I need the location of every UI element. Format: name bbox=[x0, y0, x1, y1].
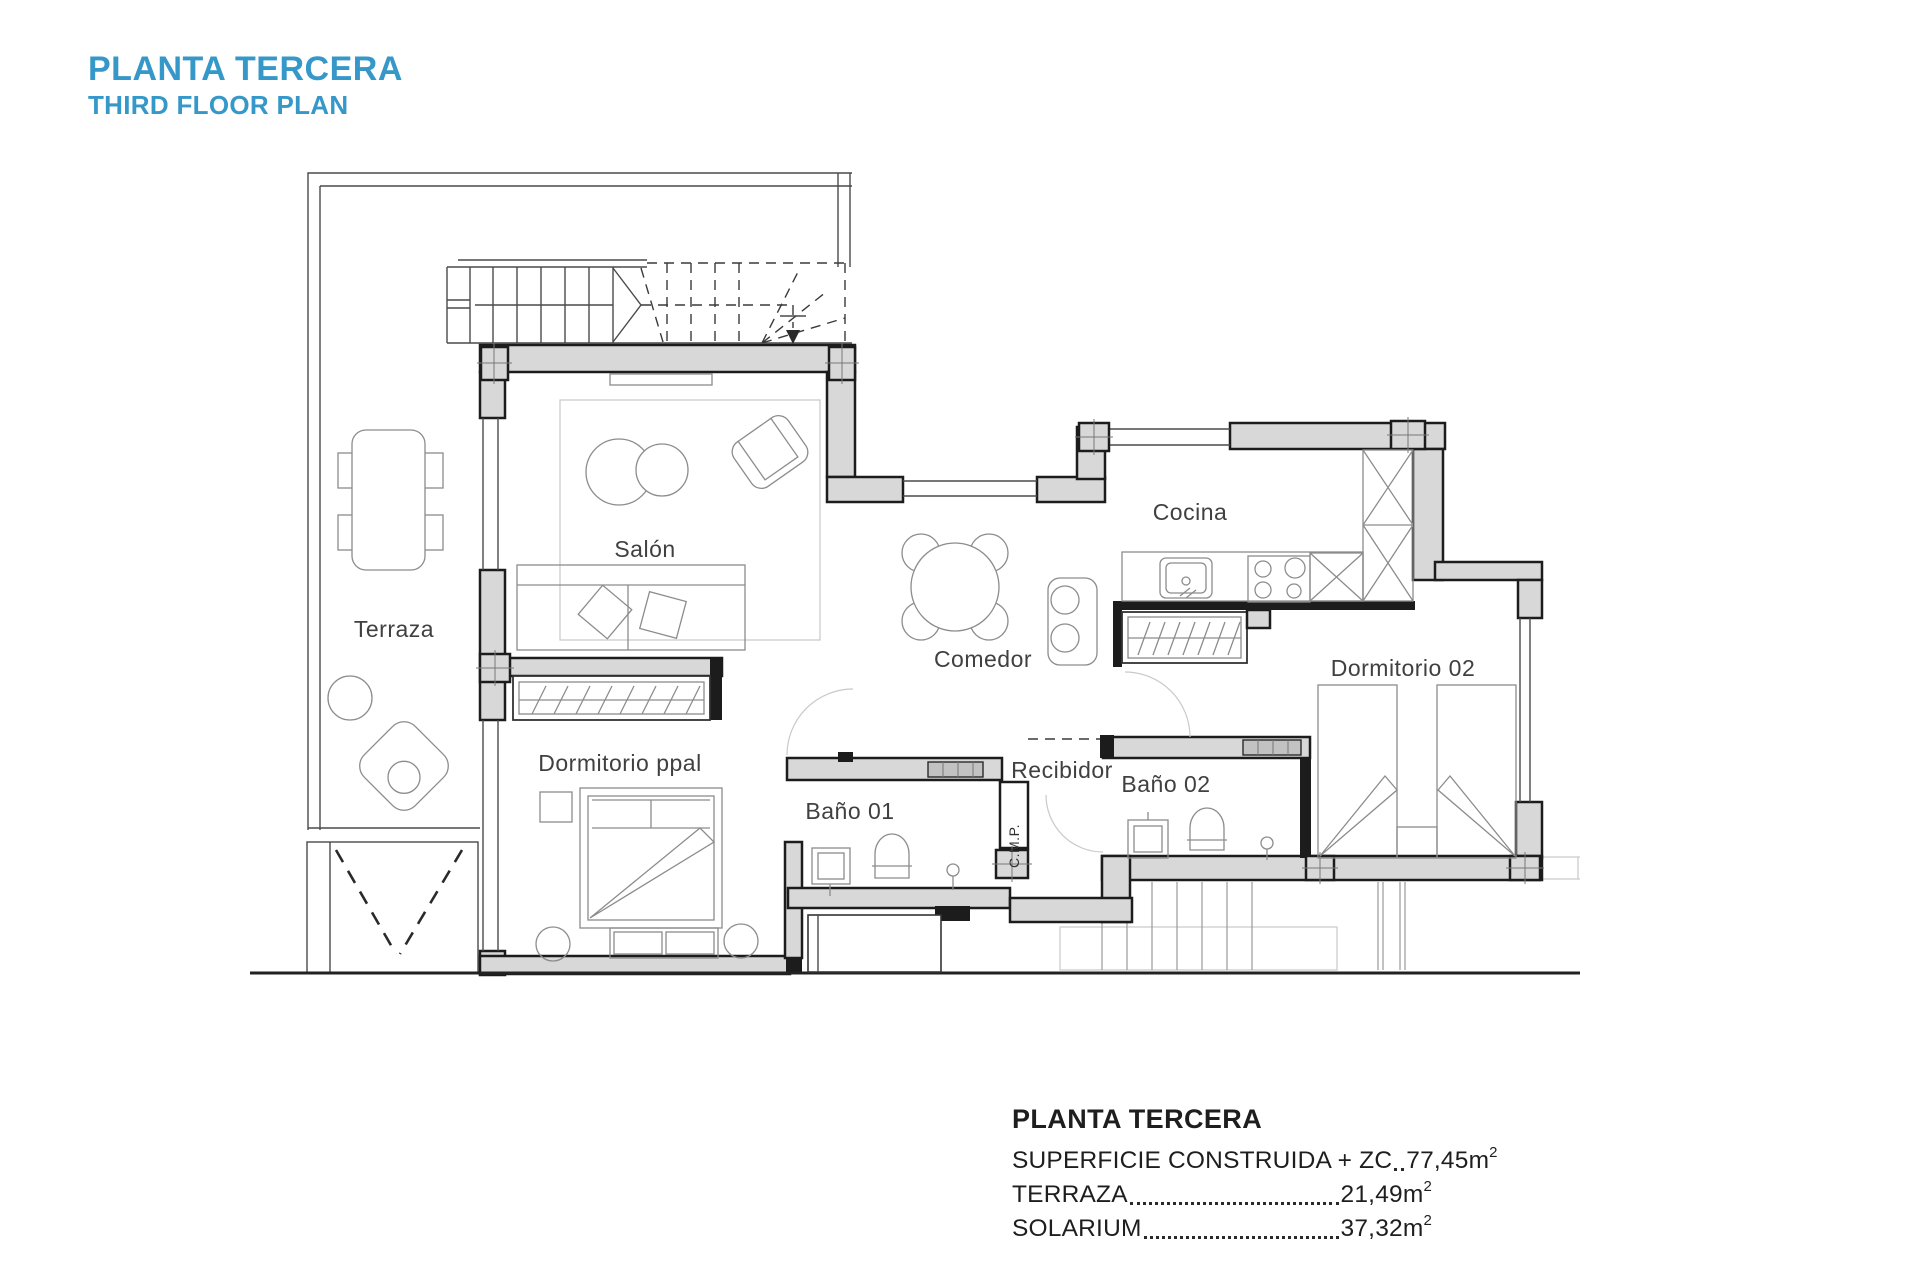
floor-plan: Terraza Salón Comedor Cocina Dormitorio … bbox=[0, 0, 1920, 1280]
room-label-dormitorio-ppal: Dormitorio ppal bbox=[538, 750, 701, 776]
summary-row-value: 77,45m2 bbox=[1406, 1146, 1497, 1175]
summary-row-label: TERRAZA bbox=[1012, 1181, 1128, 1209]
summary-row: SOLARIUM 37,32m2 bbox=[1012, 1209, 1432, 1243]
dot-leader bbox=[1144, 1236, 1339, 1239]
summary-title: PLANTA TERCERA bbox=[1012, 1104, 1432, 1135]
summary-row: SUPERFICIE CONSTRUIDA + ZC 77,45m2 bbox=[1012, 1141, 1432, 1175]
summary-row-label: SUPERFICIE CONSTRUIDA + ZC bbox=[1012, 1147, 1392, 1175]
page: PLANTA TERCERA THIRD FLOOR PLAN bbox=[0, 0, 1920, 1280]
room-label-bano-02: Baño 02 bbox=[1121, 771, 1210, 797]
summary-row-label: SOLARIUM bbox=[1012, 1215, 1142, 1243]
summary-row: TERRAZA 21,49m2 bbox=[1012, 1175, 1432, 1209]
room-label-salon: Salón bbox=[614, 536, 675, 562]
summary-row-value: 21,49m2 bbox=[1341, 1180, 1432, 1209]
room-label-comedor: Comedor bbox=[934, 646, 1032, 672]
void-opening bbox=[808, 915, 941, 972]
dot-leader bbox=[1130, 1202, 1339, 1205]
summary-row-value: 37,32m2 bbox=[1341, 1214, 1432, 1243]
room-label-recibidor: Recibidor bbox=[1011, 757, 1113, 783]
room-label-bano-01: Baño 01 bbox=[805, 798, 894, 824]
dot-leader bbox=[1394, 1168, 1404, 1171]
stairs bbox=[447, 260, 852, 344]
room-label-cmp: C.M.P. bbox=[1006, 824, 1022, 868]
room-label-terraza: Terraza bbox=[354, 616, 434, 642]
area-summary: PLANTA TERCERA SUPERFICIE CONSTRUIDA + Z… bbox=[1012, 1104, 1432, 1243]
room-label-dormitorio-02: Dormitorio 02 bbox=[1331, 655, 1476, 681]
room-label-cocina: Cocina bbox=[1153, 499, 1228, 525]
